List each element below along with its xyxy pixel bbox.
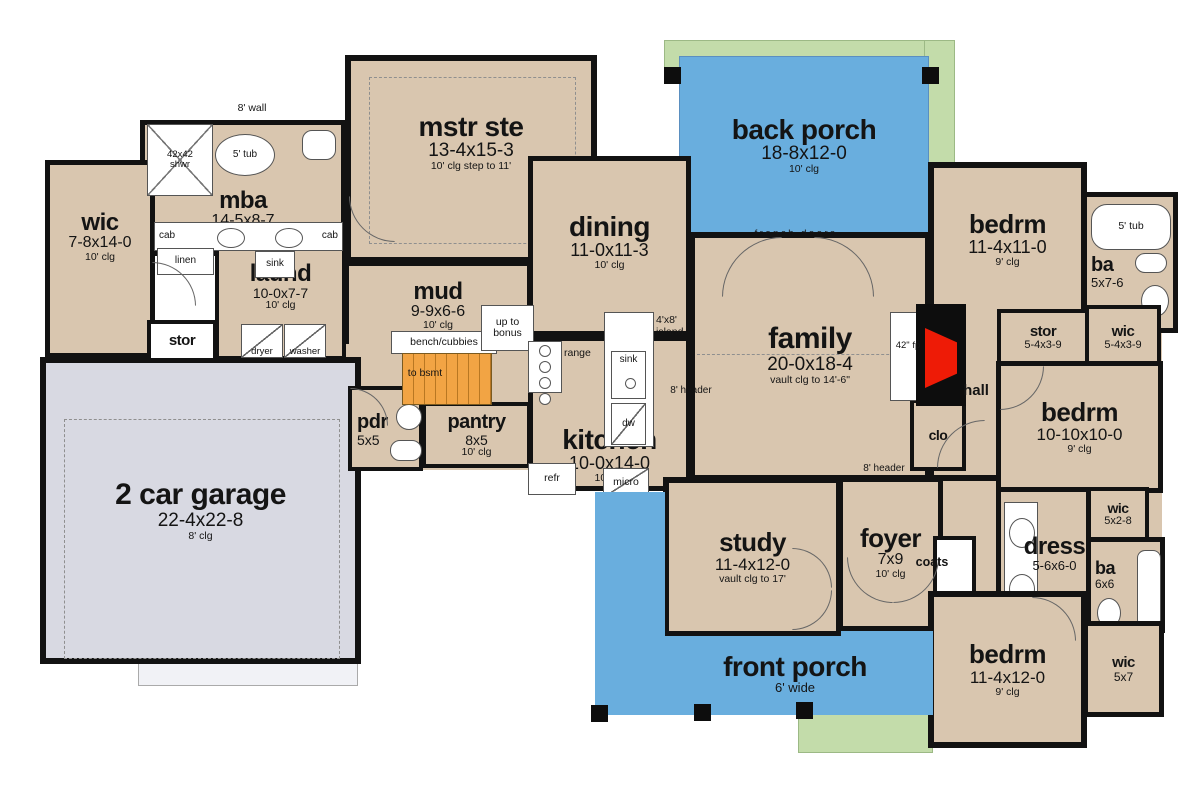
island-note: 4'x8' island	[656, 315, 706, 338]
cab-label: cab	[159, 231, 175, 242]
room-name: bedrm	[934, 211, 1081, 238]
dress-sink	[1009, 518, 1035, 548]
burner	[539, 393, 551, 405]
room-ba-e: ba 6x6	[1086, 537, 1165, 633]
floor-plan: front porch 6' wide back porch 18-8x12-0…	[0, 0, 1195, 800]
wall-note: 8' wall	[220, 103, 284, 115]
tub-label: 5' tub	[233, 150, 257, 161]
refr-label: refr	[544, 473, 560, 484]
room-wic-master: wic 7-8x14-0 10' clg	[45, 160, 155, 358]
room-stor-left: stor	[147, 320, 217, 362]
wic-ne-label: wic 5-4x3-9	[1104, 324, 1141, 351]
linen-label: linen	[175, 256, 196, 267]
room-name: back porch	[732, 115, 876, 144]
mba-sink-bowl	[217, 228, 245, 248]
bonus-label: up to bonus	[491, 317, 525, 339]
wic-se-label: wic 5x7	[1112, 655, 1135, 683]
bedrm-e-label: bedrm 10-10x10-0 9' clg	[1036, 399, 1122, 455]
fireplace-label: 42" fp	[886, 341, 930, 351]
room-clg: 10' clg	[447, 447, 505, 458]
stor-left-label: stor	[169, 333, 195, 349]
room-wic-e: wic 5x2-8	[1087, 487, 1149, 541]
tub-label: 5' tub	[1118, 221, 1143, 232]
burner	[539, 361, 551, 373]
room-name: mud	[411, 279, 465, 304]
header-note-west: 8' header	[666, 385, 716, 396]
stor-hall-label: stor 5-4x3-9	[1024, 324, 1061, 351]
room-dims: 10-0x7-7	[219, 286, 342, 301]
room-dims: 6' wide	[695, 681, 895, 695]
room-name: bedrm	[1036, 399, 1122, 426]
garage-bay-outline	[64, 419, 340, 659]
range	[528, 341, 562, 393]
shower: 42x42 shwr	[147, 124, 213, 196]
ba-ne-toilet	[1135, 253, 1167, 273]
dining-label: dining 11-0x11-3 10' clg	[533, 212, 686, 271]
dishwasher: dw	[611, 403, 646, 445]
ba-ne-tub: 5' tub	[1091, 204, 1171, 250]
mba-vanity: cab cab	[154, 222, 343, 251]
room-dims: 5-4x3-9	[1104, 340, 1141, 352]
room-clg: 10' clg	[50, 252, 150, 263]
room-name: dining	[533, 212, 686, 241]
room-dims: 9-9x6-6	[411, 304, 465, 321]
wic-e-label: wic 5x2-8	[1104, 501, 1132, 527]
room-name: wic	[50, 210, 150, 235]
room-clg: 10' clg	[411, 320, 465, 331]
room-dims: 5-4x3-9	[1024, 340, 1061, 352]
study-label: study 11-4x12-0 vault clg to 17'	[715, 529, 790, 585]
shower-label: 42x42 shwr	[159, 150, 201, 170]
cab-label: cab	[322, 231, 338, 242]
room-dims: 11-4x11-0	[934, 238, 1081, 257]
porch-post	[694, 704, 711, 721]
room-name: study	[715, 529, 790, 556]
room-clg: 9' clg	[934, 257, 1081, 268]
sink-drain	[625, 378, 636, 389]
room-clg: 10' clg	[732, 164, 876, 175]
room-dims: 11-4x12-0	[969, 669, 1046, 687]
room-name: wic	[1104, 324, 1141, 340]
sink-label: sink	[266, 259, 284, 270]
room-dims: 6x6	[1095, 578, 1115, 591]
washer-label: washer	[290, 347, 321, 357]
room-dims: 5x2-8	[1104, 516, 1132, 528]
burner	[539, 377, 551, 389]
mba-sink-bowl	[275, 228, 303, 248]
room-dims: 5x7-6	[1091, 276, 1124, 290]
room-dims: 5x5	[357, 433, 388, 448]
room-clg: vault clg to 17'	[715, 574, 790, 585]
room-stor-hall: stor 5-4x3-9	[997, 309, 1089, 367]
room-back-porch: back porch 18-8x12-0 10' clg	[679, 56, 929, 234]
island-sink: sink	[611, 351, 646, 399]
porch-post	[922, 67, 939, 84]
garage-apron	[138, 662, 358, 686]
pdr-sink	[396, 404, 422, 430]
burner	[539, 345, 551, 357]
room-dims: 18-8x12-0	[732, 144, 876, 164]
header-note-south: 8' header	[852, 463, 916, 474]
bench-label: bench/cubbies	[410, 337, 478, 348]
room-clg: 10' clg	[533, 260, 686, 271]
french-doors-label: french doors	[746, 229, 846, 239]
room-dims: 8x5	[447, 433, 505, 448]
room-dining: dining 11-0x11-3 10' clg	[528, 156, 691, 336]
pantry-label: pantry 8x5 10' clg	[447, 412, 505, 459]
room-clg: 10' clg	[219, 300, 342, 311]
room-name: front porch	[695, 652, 895, 681]
porch-post	[591, 705, 608, 722]
mud-label: mud 9-9x6-6 10' clg	[411, 279, 465, 332]
dw-label: dw	[622, 419, 635, 430]
front-porch-label: front porch 6' wide	[695, 652, 895, 695]
hall-label: hall	[949, 383, 1003, 400]
coats-label: coats	[902, 556, 962, 570]
room-wic-se: wic 5x7	[1083, 621, 1164, 717]
room-name: foyer	[843, 525, 938, 552]
room-dims: 5x7	[1112, 671, 1135, 684]
room-dims: 11-0x11-3	[533, 241, 686, 260]
ba-e-label: ba 6x6	[1095, 559, 1115, 590]
room-name: wic	[1104, 501, 1132, 516]
mba-toilet	[302, 130, 336, 160]
room-dims: 11-4x12-0	[715, 556, 790, 574]
room-dims: 7-8x14-0	[50, 235, 150, 252]
micro-label: micro	[613, 477, 639, 488]
room-name: ba	[1095, 559, 1115, 578]
room-clg: 9' clg	[969, 687, 1046, 698]
dryer: dryer	[241, 324, 283, 358]
mba-tub: 5' tub	[215, 134, 275, 176]
porch-post	[664, 67, 681, 84]
room-clg: 9' clg	[1036, 444, 1122, 455]
room-pantry: pantry 8x5 10' clg	[422, 402, 531, 468]
range-label: range	[564, 348, 608, 360]
pdr-toilet	[390, 440, 422, 461]
lawn-strip-front	[798, 709, 933, 753]
room-name: bedrm	[969, 641, 1046, 668]
stairs-up-to-bonus: up to bonus	[481, 305, 534, 351]
to-bsmt-label: to bsmt	[393, 368, 457, 380]
room-garage: 2 car garage 22-4x22-8 8' clg	[40, 357, 361, 664]
back-porch-label: back porch 18-8x12-0 10' clg	[732, 115, 876, 175]
bedrm-se-label: bedrm 11-4x12-0 9' clg	[969, 641, 1046, 697]
refrigerator: refr	[528, 463, 576, 495]
wic-master-label: wic 7-8x14-0 10' clg	[50, 210, 150, 263]
room-name: stor	[169, 333, 195, 349]
kitchen-island: sink dw	[604, 312, 654, 447]
room-name: ba	[1091, 255, 1124, 276]
room-name: pantry	[447, 412, 505, 433]
porch-post	[796, 702, 813, 719]
laund-sink: sink	[255, 251, 295, 278]
dryer-label: dryer	[251, 347, 273, 357]
fireplace-hearth	[890, 312, 918, 401]
room-name: wic	[1112, 655, 1135, 671]
ba-e-tub	[1137, 550, 1161, 628]
sink-label: sink	[620, 355, 638, 366]
bedrm-ne-label: bedrm 11-4x11-0 9' clg	[934, 211, 1081, 268]
washer: washer	[284, 324, 326, 358]
room-dims: 10-10x10-0	[1036, 426, 1122, 444]
ba-ne-label: ba 5x7-6	[1091, 255, 1124, 290]
room-name: stor	[1024, 324, 1061, 340]
